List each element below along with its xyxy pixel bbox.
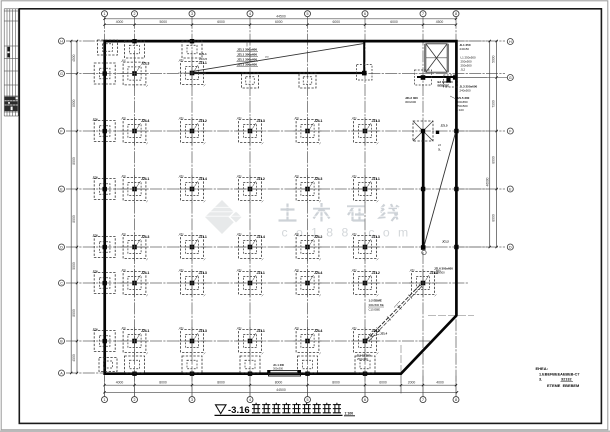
svg-text:550: 550	[180, 233, 185, 236]
svg-text:1:100: 1:100	[457, 108, 465, 112]
svg-text:44500: 44500	[276, 388, 286, 392]
svg-text:300x500 BE: 300x500 BE	[369, 303, 384, 307]
svg-text:240x5: 240x5	[199, 57, 208, 61]
svg-text:JZ6: JZ6	[93, 328, 99, 332]
svg-text:550: 550	[238, 175, 243, 178]
svg-text:JZL1: JZL1	[141, 271, 149, 275]
svg-text:JCL2: JCL2	[442, 240, 449, 244]
svg-text:1: 1	[104, 12, 106, 16]
svg-text:po: po	[265, 55, 269, 59]
svg-text:JZL1 300x600: JZL1 300x600	[237, 58, 257, 62]
svg-text:JZL3: JZL3	[199, 271, 207, 275]
svg-text:550: 550	[411, 269, 416, 272]
svg-text:550: 550	[180, 175, 185, 178]
svg-text:300x600: 300x600	[405, 100, 416, 104]
svg-text:6000: 6000	[275, 20, 283, 24]
svg-text:550: 550	[180, 59, 185, 62]
svg-text:H: H	[60, 39, 63, 43]
svg-text:240x50: 240x50	[460, 47, 470, 51]
svg-text:8000: 8000	[72, 215, 76, 223]
svg-text:5000: 5000	[72, 262, 76, 270]
svg-text:JZL3: JZL3	[257, 119, 265, 123]
svg-text:8000: 8000	[492, 156, 496, 164]
svg-text:JZL1: JZL1	[372, 177, 380, 181]
svg-text:JZL1 300x600: JZL1 300x600	[237, 48, 257, 52]
svg-text:JZ6: JZ6	[93, 176, 99, 180]
svg-text:8000: 8000	[217, 381, 225, 385]
svg-text:240x500: 240x500	[460, 89, 471, 93]
svg-text:JZL3: JZL3	[141, 235, 149, 239]
svg-text:550: 550	[295, 327, 300, 330]
svg-text:8000: 8000	[72, 99, 76, 107]
svg-text:C15 EBE: C15 EBE	[369, 308, 381, 312]
svg-text:1:2 EBME: 1:2 EBME	[369, 299, 382, 303]
svg-text:JZL4: JZL4	[257, 235, 265, 239]
svg-text:5000: 5000	[159, 20, 167, 24]
svg-text:550: 550	[180, 117, 185, 120]
svg-text:3.: 3.	[539, 377, 542, 381]
svg-text:7300: 7300	[492, 100, 496, 108]
svg-text:JZL5: JZL5	[441, 124, 448, 128]
svg-text:JZL1: JZL1	[257, 271, 265, 275]
svg-text:550: 550	[238, 269, 243, 272]
svg-text:1: 1	[104, 398, 106, 402]
svg-text:JZL1: JZL1	[141, 177, 149, 181]
svg-text:5L: 5L	[438, 148, 442, 152]
svg-text:JZL2: JZL2	[372, 271, 380, 275]
svg-text:JZL4: JZL4	[380, 332, 388, 336]
svg-text:300x300: 300x300	[273, 366, 284, 370]
svg-text:550: 550	[353, 233, 358, 236]
svg-text:JZL1: JZL1	[257, 329, 265, 333]
svg-text:JC-1 300: JC-1 300	[273, 363, 285, 367]
svg-text:JZL2: JZL2	[199, 119, 207, 123]
svg-text:JL2: JL2	[461, 68, 466, 72]
svg-text:G: G	[60, 72, 63, 76]
svg-text:JZ6: JZ6	[93, 270, 99, 274]
svg-text:JZL2: JZL2	[372, 329, 380, 333]
svg-text:550: 550	[122, 59, 127, 62]
svg-text:JZL1: JZL1	[314, 119, 322, 123]
svg-text:550: 550	[122, 233, 127, 236]
svg-text:550: 550	[295, 269, 300, 272]
svg-text:D: D	[509, 245, 512, 249]
svg-text:7: 7	[422, 398, 424, 402]
svg-text:550: 550	[295, 175, 300, 178]
svg-text:550: 550	[122, 269, 127, 272]
svg-text:550: 550	[436, 269, 441, 273]
svg-text:JZL4: JZL4	[141, 119, 149, 123]
svg-text:JZL1: JZL1	[199, 235, 207, 239]
svg-text:8000: 8000	[72, 157, 76, 165]
svg-text:250x300: 250x300	[357, 357, 368, 361]
svg-text:8: 8	[455, 12, 457, 16]
svg-text:4500: 4500	[72, 354, 76, 362]
svg-text:46000: 46000	[485, 177, 489, 186]
svg-text:4500: 4500	[436, 20, 444, 24]
svg-text:BEBEBE: BEBEBE	[438, 84, 450, 88]
svg-text:3: 3	[191, 12, 193, 16]
svg-text:5000: 5000	[492, 55, 496, 63]
svg-text:550: 550	[238, 327, 243, 330]
svg-text:550: 550	[295, 233, 300, 236]
svg-text:2000: 2000	[408, 381, 416, 385]
svg-text:JZL1 300x600: JZL1 300x600	[237, 53, 257, 57]
svg-text:6000: 6000	[390, 20, 398, 24]
svg-text:JZL2: JZL2	[314, 235, 322, 239]
svg-text:8000: 8000	[492, 214, 496, 222]
svg-text:D: D	[60, 245, 63, 249]
svg-text:550: 550	[122, 327, 127, 330]
svg-text:H: H	[509, 40, 512, 44]
svg-text:JZL1 300x600: JZL1 300x600	[237, 63, 257, 67]
svg-text:6: 6	[364, 398, 366, 402]
svg-text:KZL1: KZL1	[199, 52, 207, 56]
svg-text:1:100: 1:100	[345, 412, 354, 416]
svg-text:4000: 4000	[436, 381, 444, 385]
svg-text:JZL1: JZL1	[141, 329, 149, 333]
svg-text:8000: 8000	[332, 381, 340, 385]
svg-text:4000: 4000	[116, 381, 124, 385]
svg-text:550: 550	[353, 269, 358, 272]
svg-text:550: 550	[238, 233, 243, 236]
svg-text:44500: 44500	[276, 15, 286, 19]
svg-text:8000: 8000	[275, 381, 283, 385]
svg-text:1.EBEFBEEAEBEB-C7: 1.EBEFBEEAEBEB-C7	[539, 372, 580, 376]
svg-text:4: 4	[249, 398, 251, 402]
svg-text:8000: 8000	[159, 381, 167, 385]
svg-text:JZL3: JZL3	[314, 177, 322, 181]
svg-text:6: 6	[364, 12, 366, 16]
svg-text:ETEME EBEBEM: ETEME EBEBEM	[547, 383, 579, 388]
svg-text:8000: 8000	[72, 309, 76, 317]
svg-text:JZL3: JZL3	[372, 235, 380, 239]
svg-text:JZL3: JZL3	[141, 62, 149, 66]
svg-text:JZ6: JZ6	[93, 234, 99, 238]
svg-text:550: 550	[238, 117, 243, 120]
svg-text:6000: 6000	[379, 381, 387, 385]
svg-text:550: 550	[295, 117, 300, 120]
svg-text:8: 8	[455, 398, 457, 402]
svg-text:4500: 4500	[72, 54, 76, 62]
svg-text:32132: 32132	[561, 377, 572, 381]
svg-text:JZL3: JZL3	[372, 119, 380, 123]
svg-text:JZL1: JZL1	[199, 61, 207, 65]
svg-text:4: 4	[249, 12, 251, 16]
svg-text:6000: 6000	[217, 20, 225, 24]
svg-text:C: C	[60, 281, 63, 285]
svg-text:c o 1 8 8 . c o m: c o 1 8 8 . c o m	[282, 226, 411, 240]
svg-text:2: 2	[134, 12, 136, 16]
svg-text:550: 550	[122, 175, 127, 178]
svg-text:550: 550	[353, 327, 358, 330]
svg-text:JZL4: JZL4	[314, 271, 322, 275]
svg-text:550: 550	[180, 269, 185, 272]
svg-text:2: 2	[134, 398, 136, 402]
svg-text:3: 3	[191, 398, 193, 402]
svg-text:5: 5	[307, 398, 309, 402]
svg-text:JZL3: JZL3	[199, 329, 207, 333]
svg-text:4000: 4000	[116, 20, 124, 24]
svg-text:550: 550	[180, 327, 185, 330]
svg-text:7: 7	[422, 12, 424, 16]
svg-text:550: 550	[353, 117, 358, 120]
svg-text:550: 550	[353, 175, 358, 178]
svg-text:JZL4: JZL4	[314, 329, 322, 333]
svg-text:-3.16: -3.16	[228, 405, 250, 416]
svg-text:JZL4: JZL4	[199, 177, 207, 181]
svg-text:EHEA:: EHEA:	[536, 366, 548, 371]
svg-text:550: 550	[122, 117, 127, 120]
svg-text:JZL2: JZL2	[257, 177, 265, 181]
svg-text:6000: 6000	[332, 20, 340, 24]
svg-text:JZ6: JZ6	[93, 118, 99, 122]
svg-text:5: 5	[307, 12, 309, 16]
svg-text:G: G	[509, 76, 512, 80]
